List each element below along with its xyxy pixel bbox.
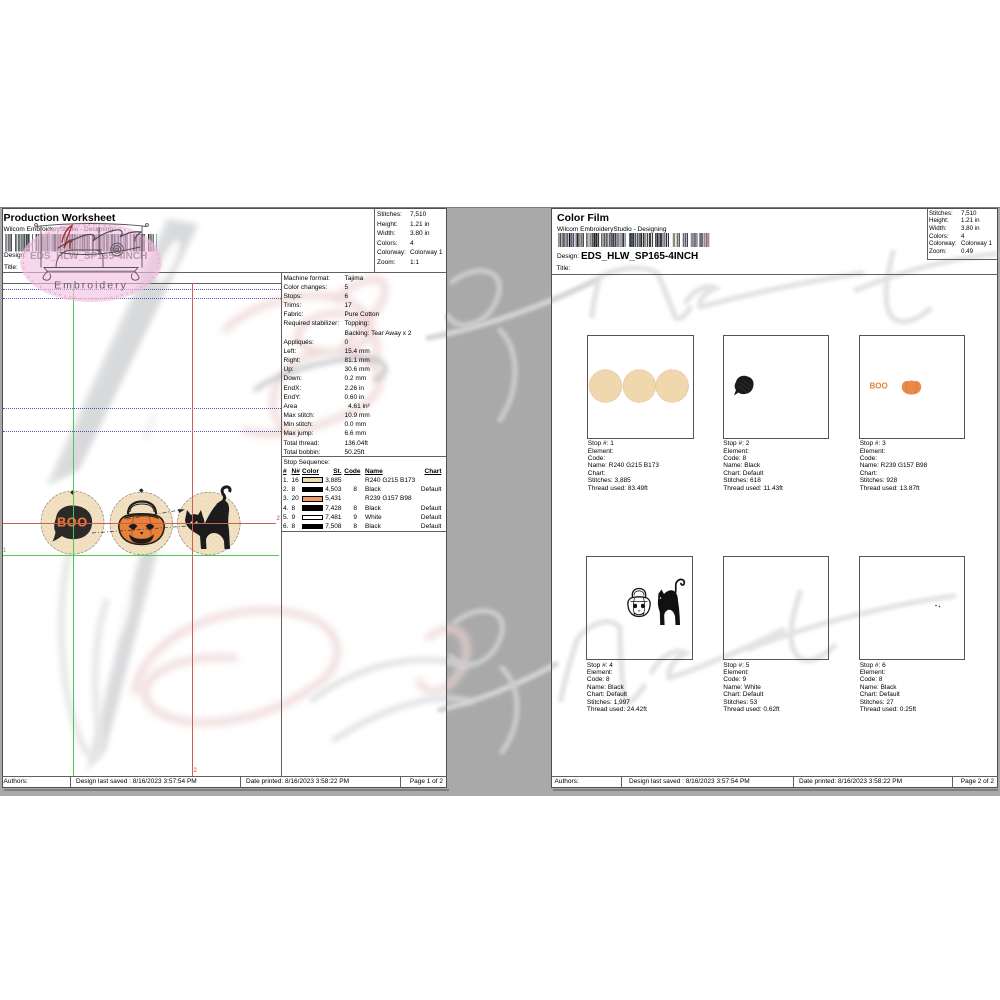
svg-text:BOO: BOO — [870, 382, 888, 391]
svg-text:Embroidery: Embroidery — [54, 280, 128, 292]
